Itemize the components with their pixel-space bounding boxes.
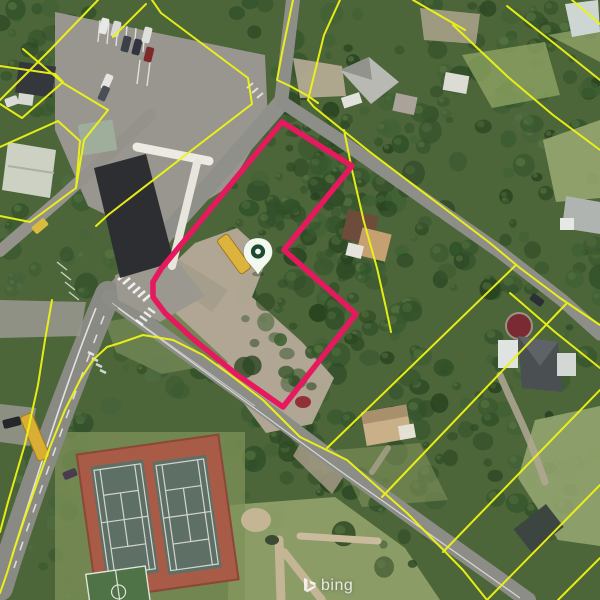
red-object <box>295 396 311 408</box>
bing-logo-icon <box>302 578 317 595</box>
aerial-imagery[interactable] <box>0 0 600 600</box>
bing-watermark: bing <box>302 577 353 595</box>
satellite-map-view[interactable]: bing <box>0 0 600 600</box>
bing-watermark-text: bing <box>321 577 353 595</box>
round-pool <box>506 313 532 339</box>
right-edge-barn <box>560 196 600 234</box>
green-roof-house <box>78 119 117 155</box>
